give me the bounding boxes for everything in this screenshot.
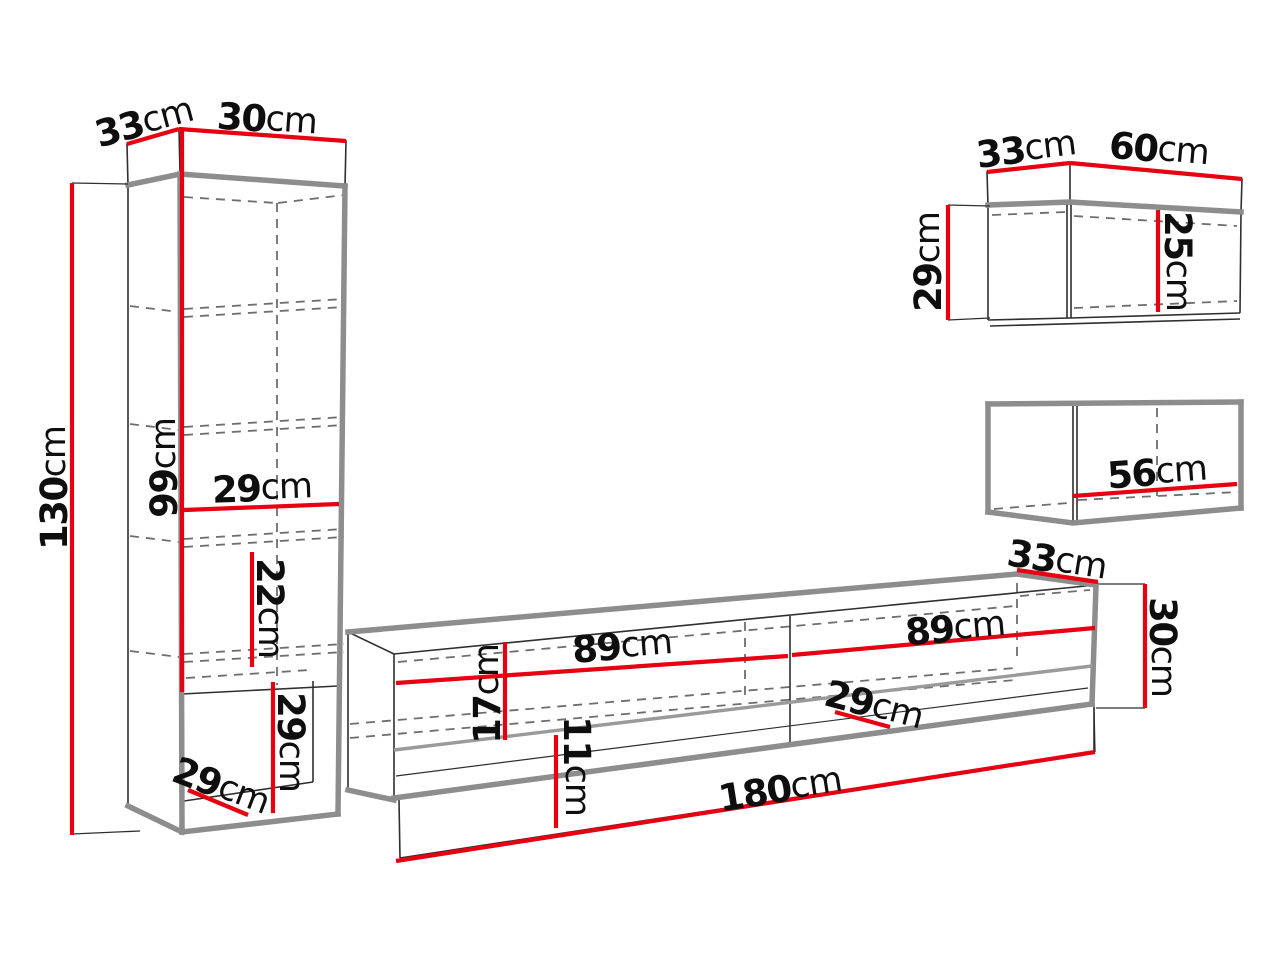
ext-total-height-bottom <box>72 831 140 834</box>
right-edge <box>1240 212 1241 313</box>
label-upper-side-height: 29cm <box>907 212 950 312</box>
upper-cabinet-side-face <box>988 202 1070 320</box>
label-tv-niche-height: 11cm <box>556 716 599 816</box>
bottom-sliver <box>990 319 1240 326</box>
top-panel <box>988 402 1241 404</box>
wall-cabinet-upper <box>987 163 1242 326</box>
label-upper-inner-height: 25cm <box>1157 211 1200 311</box>
label-tv-front-height: 17cm <box>466 644 509 744</box>
furniture-dimension-diagram: 33cm 30cm 130cm 99cm 29cm 22cm 29cm 29cm… <box>0 0 1280 960</box>
label-tall-inner-width: 29cm <box>211 465 312 511</box>
ext-upper-height-bottom <box>948 318 990 320</box>
label-lower-inner-width: 56cm <box>1106 447 1209 497</box>
label-tall-total-height: 130cm <box>33 426 76 550</box>
diagram-canvas: 33cm 30cm 130cm 99cm 29cm 22cm 29cm 29cm… <box>0 0 1280 960</box>
label-tall-width-top: 30cm <box>216 94 319 144</box>
label-tall-niche-height: 29cm <box>270 692 313 792</box>
ext-total-height-top <box>72 183 128 184</box>
tv-stand-side-face <box>348 632 394 798</box>
label-tall-shelf-spacing: 22cm <box>249 558 292 658</box>
top-face-apex-edge <box>179 129 180 174</box>
label-tall-upper-height: 99cm <box>143 418 186 518</box>
label-upper-width-top: 60cm <box>1107 123 1210 175</box>
plinth-left-edge <box>399 800 400 858</box>
ext-upper-height-top <box>948 205 990 206</box>
upper-cabinet-front-face <box>1070 202 1241 318</box>
label-tv-side-height: 30cm <box>1142 597 1185 697</box>
